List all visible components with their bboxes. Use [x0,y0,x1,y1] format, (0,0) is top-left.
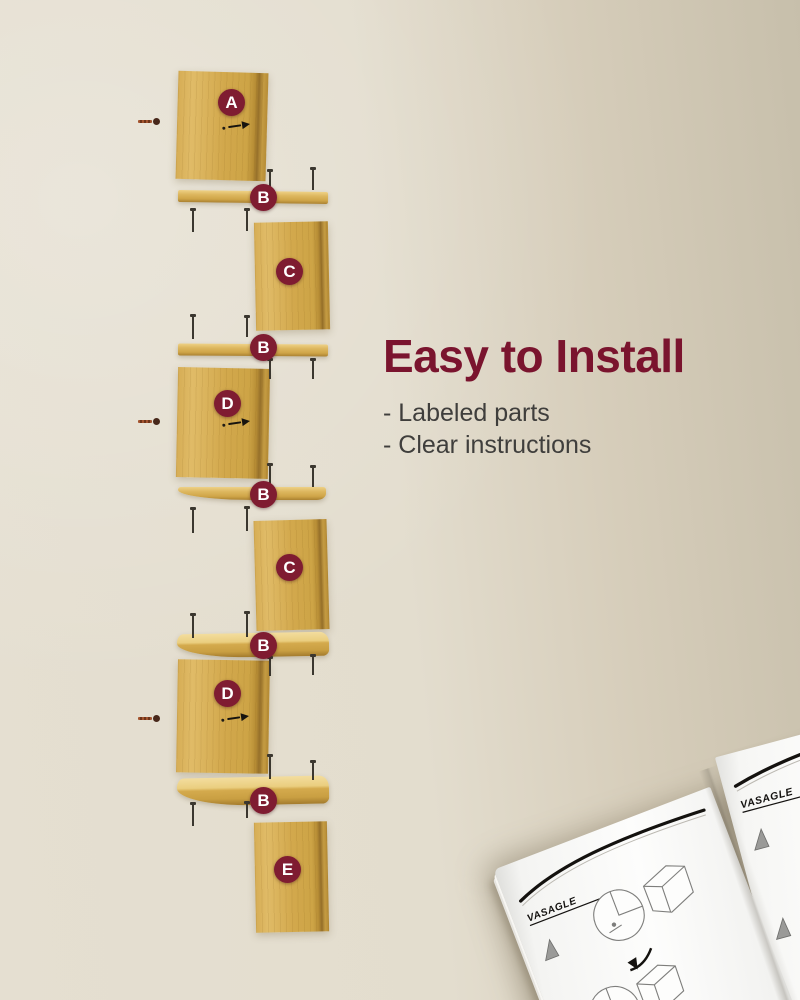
part-label-e: E [274,856,301,883]
part-label-b-4: B [250,632,277,659]
nail-icon [312,466,314,487]
screw-head [153,418,160,425]
product-infographic: A B C B D B C B D B E [0,0,800,1000]
screw-icon [138,118,160,125]
part-label-a: A [218,89,245,116]
arrow-tip [240,712,249,721]
nail-icon [192,315,194,339]
page-title: Easy to Install [383,330,685,382]
instruction-manual: VASAGLE [490,692,800,1000]
screw-dot [222,126,225,129]
screw-icon [138,418,160,425]
screw-head [153,118,160,125]
bullet-list: - Labeled parts - Clear instructions [383,397,685,461]
part-label-c-1: C [276,258,303,285]
nail-icon [192,803,194,826]
nail-icon [192,614,194,638]
booklet-brand: VASAGLE [739,787,794,812]
screw-thread [138,420,152,423]
part-label-b-3: B [250,481,277,508]
copy-block: Easy to Install - Labeled parts - Clear … [383,330,685,461]
screw-dot [221,718,224,721]
arrow-tip [241,417,250,426]
part-label-b-1: B [250,184,277,211]
nail-icon [246,802,248,818]
arrow-shaft [228,124,241,128]
nail-icon [246,209,248,231]
screw-thread [138,717,152,720]
part-label-d-1: D [214,390,241,417]
screw-thread [138,120,152,123]
arrow-tip [241,120,250,129]
part-label-d-2: D [214,680,241,707]
screw-icon [138,715,160,722]
nail-icon [192,209,194,232]
screw-head [153,715,160,722]
nail-icon [246,316,248,337]
bullet-item: - Clear instructions [383,429,685,461]
nail-icon [246,612,248,637]
bullet-item: - Labeled parts [383,397,685,429]
nail-icon [246,507,248,531]
arrow-shaft [228,421,241,425]
nail-icon [312,655,314,675]
part-label-c-2: C [276,554,303,581]
nail-icon [312,168,314,190]
screw-dot [222,423,225,426]
part-label-b-5: B [250,787,277,814]
part-label-b-2: B [250,334,277,361]
nail-icon [192,508,194,533]
arrow-shaft [227,716,240,720]
nail-icon [312,359,314,379]
nail-icon [269,359,271,379]
nail-icon [269,657,271,676]
nail-icon [312,761,314,780]
nail-icon [269,755,271,779]
